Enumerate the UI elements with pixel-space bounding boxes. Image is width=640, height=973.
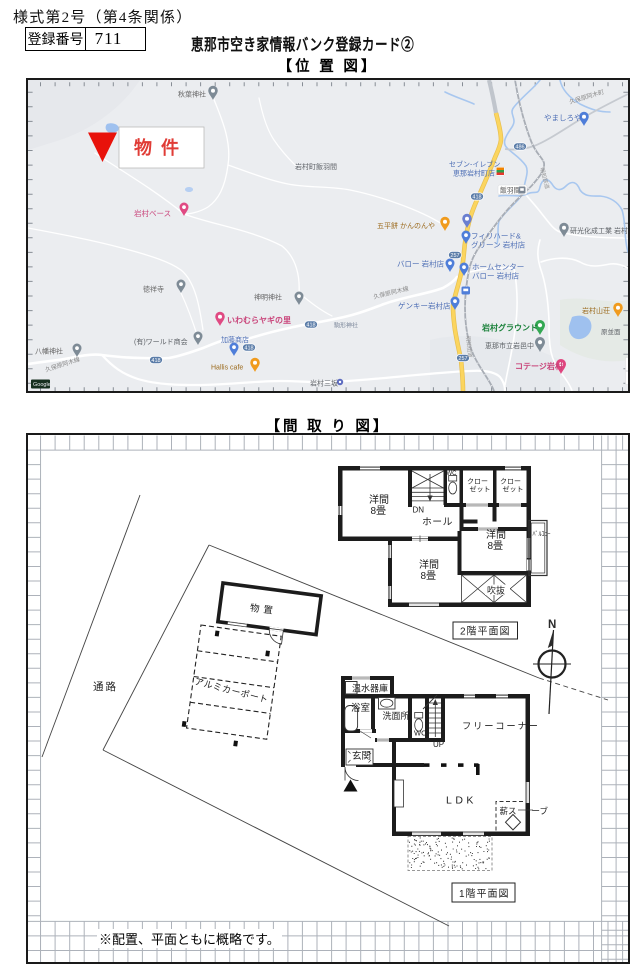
svg-text:N: N [548,619,556,631]
svg-text:岩村三坂: 岩村三坂 [310,379,338,388]
svg-text:アルミカーポート: アルミカーポート [193,676,269,705]
svg-text:418: 418 [244,346,253,352]
svg-text:八幡神社: 八幡神社 [35,347,63,356]
svg-text:やましろや: やましろや [544,114,582,123]
svg-text:418: 418 [151,358,160,364]
svg-text:いわむらヤギの里: いわむらヤギの里 [227,315,291,325]
svg-text:洗面所: 洗面所 [383,710,410,721]
svg-text:グリーン 岩村店: グリーン 岩村店 [471,240,526,250]
svg-text:五平餅 かんのんや: 五平餅 かんのんや [377,221,435,230]
svg-text:8畳: 8畳 [371,505,387,517]
svg-text:ホームセンター: ホームセンター [472,263,524,272]
svg-text:ゲンキー岩村店: ゲンキー岩村店 [398,301,451,311]
svg-text:フリーコーナー: フリーコーナー [462,721,540,731]
svg-text:岩村町飯羽間: 岩村町飯羽間 [295,162,337,171]
svg-text:2階平面図: 2階平面図 [460,626,511,638]
svg-text:セブン-イレブン: セブン-イレブン [449,160,500,169]
svg-text:洋間: 洋間 [486,528,506,541]
svg-text:ﾊﾞﾙｺﾆｰ: ﾊﾞﾙｺﾆｰ [533,531,551,538]
svg-text:恵那岩村町店: 恵那岩村町店 [453,169,495,178]
svg-text:フィリハード&: フィリハード& [471,232,521,241]
svg-text:バロー 岩村店: バロー 岩村店 [472,271,520,281]
svg-text:1階平面図: 1階平面図 [459,888,510,900]
svg-text:ホール: ホール [422,516,453,528]
svg-text:神明神社: 神明神社 [254,293,282,302]
svg-text:原並面: 原並面 [601,327,621,336]
svg-text:ゼット: ゼット [470,485,491,494]
svg-text:DN: DN [413,506,425,515]
svg-text:加藤商店: 加藤商店 [221,335,249,344]
svg-text:徳祥寺: 徳祥寺 [143,285,164,294]
svg-text:LDK: LDK [446,795,477,807]
svg-text:UP: UP [433,740,444,749]
svg-text:研光化成工業 岩村: 研光化成工業 岩村 [570,226,628,235]
svg-text:WC: WC [414,729,427,738]
svg-text:257: 257 [450,253,459,259]
svg-text:駒形神社: 駒形神社 [334,322,358,330]
svg-text:岩村山荘: 岩村山荘 [582,306,610,315]
svg-text:Google: Google [33,382,51,388]
svg-text:通路: 通路 [93,680,118,693]
svg-text:岩村ベース: 岩村ベース [134,208,171,218]
svg-text:クロー: クロー [500,478,521,486]
svg-text:飯羽間: 飯羽間 [500,186,521,195]
svg-text:吹抜: 吹抜 [487,585,505,596]
svg-text:8畳: 8畳 [421,570,437,582]
svg-text:物件: 物件 [134,137,188,158]
svg-text:418: 418 [472,195,481,201]
svg-text:486: 486 [515,145,524,151]
svg-text:コテージ岩村: コテージ岩村 [515,361,563,371]
svg-text:洋間: 洋間 [419,558,439,571]
svg-text:ゼット: ゼット [503,485,524,494]
svg-text:浴室: 浴室 [351,702,370,714]
svg-text:恵那市立岩邑中: 恵那市立岩邑中 [485,341,534,350]
svg-text:洋間: 洋間 [369,493,389,506]
svg-text:岩村グラウンド: 岩村グラウンド [481,323,538,333]
svg-text:(有)ワールド商会: (有)ワールド商会 [134,337,188,346]
svg-text:バロー 岩村店: バロー 岩村店 [397,259,445,269]
svg-text:ーブ: ーブ [532,806,549,816]
svg-text:薪ス: 薪ス [500,806,517,816]
svg-text:8畳: 8畳 [488,540,504,552]
svg-text:418: 418 [306,323,315,329]
svg-text:秋葉神社: 秋葉神社 [178,90,206,99]
svg-text:Hallis cafe: Hallis cafe [211,365,243,372]
svg-text:玄関: 玄関 [352,750,371,762]
svg-text:温水器庫: 温水器庫 [352,683,388,694]
svg-text:クロー: クロー [467,478,488,486]
